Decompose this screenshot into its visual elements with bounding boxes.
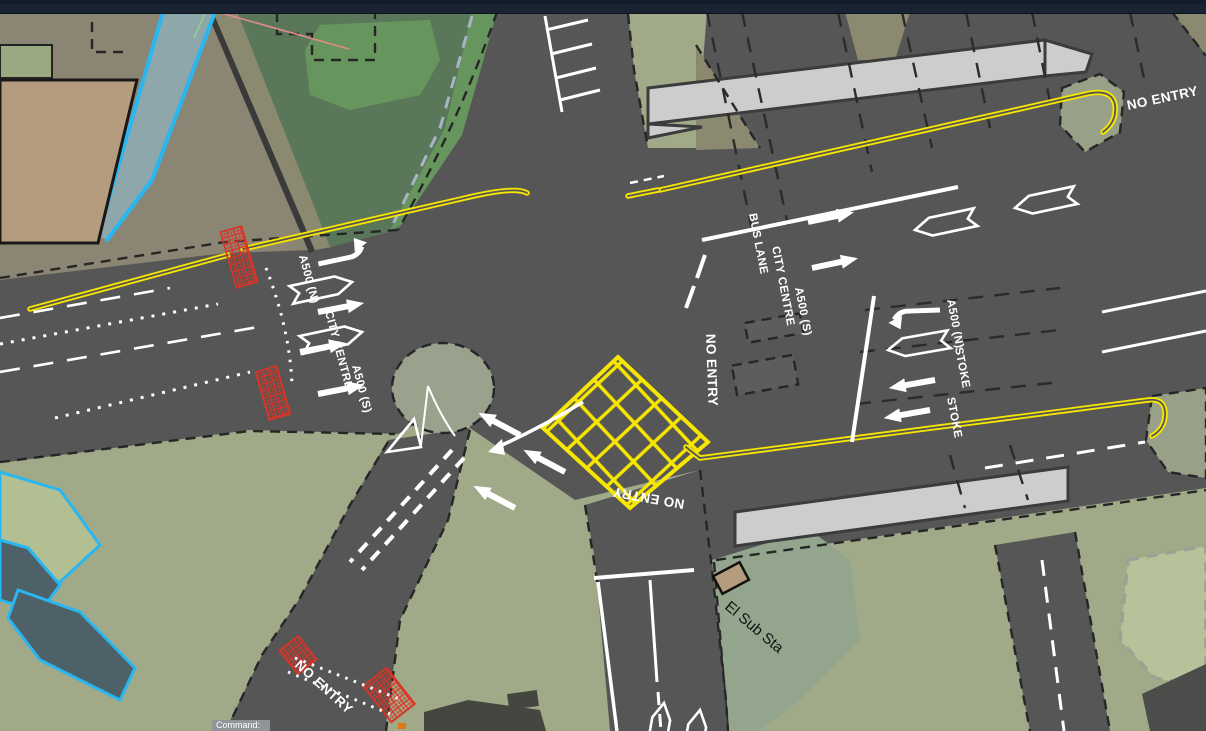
title-bar[interactable] [0,0,1206,14]
command-line[interactable]: Command: [212,720,270,731]
marker-dot [398,723,406,729]
central-island [392,343,494,433]
drawing-canvas[interactable]: A500 (N) CITY CENTRE A500 (S) BUS LANE C… [0,0,1206,731]
command-prompt-text: Command: [216,720,260,730]
cad-viewport[interactable]: A500 (N) CITY CENTRE A500 (S) BUS LANE C… [0,0,1206,731]
no-entry-label: NO ENTRY [703,334,721,407]
